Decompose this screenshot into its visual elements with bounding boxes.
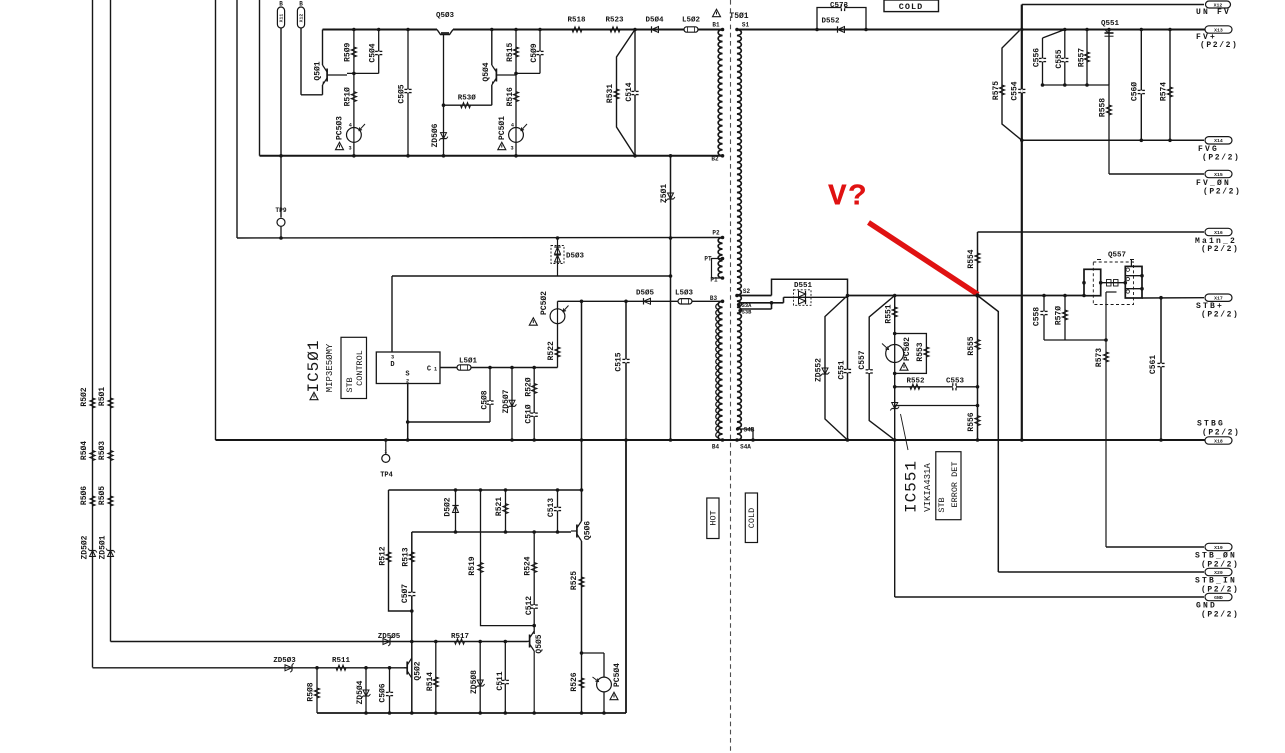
svg-text:R531: R531 bbox=[606, 84, 615, 103]
svg-text:R553: R553 bbox=[916, 342, 925, 361]
svg-text:3: 3 bbox=[511, 146, 514, 152]
svg-text:X16: X16 bbox=[1214, 230, 1223, 236]
svg-text:C561: C561 bbox=[1149, 355, 1158, 374]
svg-text:1: 1 bbox=[384, 449, 387, 455]
svg-text:S4A: S4A bbox=[740, 444, 751, 451]
svg-text:ERROR DET: ERROR DET bbox=[950, 462, 960, 508]
svg-text:L5Ø1: L5Ø1 bbox=[459, 357, 478, 366]
svg-text:Q5Ø4: Q5Ø4 bbox=[482, 62, 491, 81]
svg-text:R526: R526 bbox=[570, 672, 579, 691]
svg-text:(P2/2): (P2/2) bbox=[1203, 188, 1241, 197]
svg-text:C5Ø9: C5Ø9 bbox=[530, 43, 539, 62]
svg-text:R57Ø: R57Ø bbox=[1055, 306, 1064, 325]
svg-text:Q5Ø5: Q5Ø5 bbox=[535, 634, 544, 653]
svg-text:STB: STB bbox=[937, 497, 947, 512]
svg-text:ZD5Ø5: ZD5Ø5 bbox=[378, 632, 401, 641]
svg-text:(P2/2): (P2/2) bbox=[1202, 154, 1240, 163]
svg-text:VIKIA431A: VIKIA431A bbox=[923, 463, 933, 512]
svg-text:B3: B3 bbox=[710, 295, 718, 302]
svg-text:GND: GND bbox=[1196, 602, 1217, 611]
svg-text:D5Ø2: D5Ø2 bbox=[443, 497, 452, 516]
svg-text:(P2/2): (P2/2) bbox=[1202, 429, 1240, 438]
svg-text:X14: X14 bbox=[1214, 138, 1223, 144]
svg-text:PT: PT bbox=[704, 256, 712, 263]
svg-text:R5Ø9: R5Ø9 bbox=[343, 42, 352, 61]
svg-text:C553: C553 bbox=[946, 378, 965, 386]
svg-text:1: 1 bbox=[434, 366, 437, 372]
svg-text:ZD5Ø2: ZD5Ø2 bbox=[81, 535, 90, 559]
svg-text:(P2/2): (P2/2) bbox=[1201, 311, 1239, 320]
svg-text:(P2/2): (P2/2) bbox=[1201, 245, 1239, 254]
svg-text:Q551: Q551 bbox=[1101, 20, 1120, 28]
svg-text:R517: R517 bbox=[451, 633, 469, 641]
svg-text:C557: C557 bbox=[858, 350, 867, 369]
svg-text:S2: S2 bbox=[743, 288, 751, 295]
svg-text:R51Ø: R51Ø bbox=[343, 87, 352, 106]
svg-text:C515: C515 bbox=[615, 352, 624, 371]
svg-text:D552: D552 bbox=[821, 18, 840, 26]
svg-text:C556: C556 bbox=[1033, 48, 1042, 67]
svg-text:PC5Ø3: PC5Ø3 bbox=[336, 116, 345, 140]
svg-text:FV_ØN: FV_ØN bbox=[1196, 179, 1231, 188]
svg-text:S: S bbox=[405, 371, 409, 379]
svg-text:R53Ø: R53Ø bbox=[458, 94, 477, 103]
svg-text:C573: C573 bbox=[830, 2, 849, 10]
svg-text:R522: R522 bbox=[547, 341, 556, 360]
svg-text:R5Ø6: R5Ø6 bbox=[80, 486, 89, 505]
svg-text:C: C bbox=[427, 365, 431, 373]
svg-text:V?: V? bbox=[828, 180, 868, 215]
svg-text:R5Ø5: R5Ø5 bbox=[98, 486, 107, 505]
svg-text:R525: R525 bbox=[570, 571, 579, 590]
svg-text:Q5Ø6: Q5Ø6 bbox=[584, 521, 593, 540]
svg-text:R5Ø4: R5Ø4 bbox=[80, 441, 89, 460]
svg-text:STB_ØN: STB_ØN bbox=[1195, 552, 1237, 561]
svg-text:STB+: STB+ bbox=[1196, 302, 1224, 311]
svg-text:R574: R574 bbox=[1159, 82, 1168, 101]
svg-text:STB_IN: STB_IN bbox=[1195, 577, 1237, 586]
svg-text:Q557: Q557 bbox=[1108, 252, 1126, 260]
svg-text:ZD5Ø4: ZD5Ø4 bbox=[356, 680, 365, 704]
svg-text:R515: R515 bbox=[506, 42, 515, 61]
svg-text:B2: B2 bbox=[711, 156, 719, 163]
svg-text:Q5Ø1: Q5Ø1 bbox=[314, 61, 323, 80]
svg-text:D: D bbox=[390, 361, 394, 369]
svg-text:R5Ø3: R5Ø3 bbox=[98, 441, 107, 460]
svg-text:GND: GND bbox=[1214, 595, 1223, 601]
svg-text:R573: R573 bbox=[1095, 348, 1104, 367]
svg-text:S1: S1 bbox=[742, 22, 750, 29]
svg-text:R524: R524 bbox=[523, 556, 532, 575]
svg-text:S3B: S3B bbox=[742, 309, 752, 315]
svg-text:TP4: TP4 bbox=[380, 472, 393, 480]
svg-text:R575: R575 bbox=[992, 81, 1001, 100]
svg-text:X18: X18 bbox=[1214, 438, 1223, 444]
svg-text:R511: R511 bbox=[332, 657, 351, 665]
svg-text:C558: C558 bbox=[1032, 307, 1041, 326]
svg-text:D551: D551 bbox=[794, 282, 813, 290]
svg-text:X17: X17 bbox=[1214, 296, 1223, 302]
svg-text:4: 4 bbox=[349, 123, 352, 129]
svg-text:HOT: HOT bbox=[708, 510, 718, 525]
svg-text:C5Ø8: C5Ø8 bbox=[481, 390, 490, 409]
svg-text:R555: R555 bbox=[967, 336, 976, 355]
svg-text:X20: X20 bbox=[1214, 570, 1223, 576]
svg-text:TP9: TP9 bbox=[275, 207, 286, 214]
svg-text:4: 4 bbox=[511, 123, 514, 129]
svg-text:C56Ø: C56Ø bbox=[1130, 82, 1139, 101]
svg-text:STB: STB bbox=[345, 377, 355, 392]
svg-text:L5Ø3: L5Ø3 bbox=[675, 289, 694, 298]
svg-text:PC5Ø2: PC5Ø2 bbox=[540, 291, 549, 315]
svg-text:B1: B1 bbox=[712, 22, 720, 29]
svg-text:PC5Ø2: PC5Ø2 bbox=[903, 337, 912, 361]
svg-text:PC5Ø1: PC5Ø1 bbox=[498, 116, 507, 140]
svg-text:X12: X12 bbox=[298, 14, 304, 23]
svg-text:T5Ø1: T5Ø1 bbox=[729, 12, 748, 21]
svg-text:ZD5Ø1: ZD5Ø1 bbox=[99, 535, 108, 559]
svg-text:X11: X11 bbox=[278, 14, 284, 23]
svg-text:COLD: COLD bbox=[899, 2, 923, 12]
svg-text:ZD552: ZD552 bbox=[814, 358, 823, 382]
svg-text:D5Ø3: D5Ø3 bbox=[566, 252, 585, 261]
svg-text:MIP3E5ØMY: MIP3E5ØMY bbox=[325, 343, 335, 392]
svg-text:IC5Ø1: IC5Ø1 bbox=[305, 339, 323, 392]
svg-text:D5Ø5: D5Ø5 bbox=[636, 289, 655, 298]
svg-text:R5Ø8: R5Ø8 bbox=[306, 682, 315, 701]
svg-text:C5Ø5: C5Ø5 bbox=[397, 84, 406, 103]
svg-text:R514: R514 bbox=[426, 672, 435, 691]
svg-text:C5Ø7: C5Ø7 bbox=[401, 584, 410, 603]
svg-text:L5Ø2: L5Ø2 bbox=[682, 16, 701, 25]
svg-text:(P2/2): (P2/2) bbox=[1201, 611, 1239, 620]
svg-text:R512: R512 bbox=[379, 546, 388, 565]
svg-text:STBG: STBG bbox=[1197, 420, 1225, 429]
svg-text:3: 3 bbox=[391, 355, 394, 361]
svg-text:C554: C554 bbox=[1011, 81, 1020, 100]
svg-text:S3A: S3A bbox=[742, 303, 752, 309]
svg-text:R513: R513 bbox=[401, 547, 410, 566]
svg-text:R518: R518 bbox=[567, 17, 586, 25]
svg-text:R519: R519 bbox=[468, 556, 477, 575]
svg-text:R516: R516 bbox=[506, 87, 515, 106]
svg-text:ZD5Ø6: ZD5Ø6 bbox=[431, 123, 440, 147]
svg-text:3: 3 bbox=[348, 146, 351, 152]
svg-text:Q5Ø3: Q5Ø3 bbox=[436, 11, 455, 20]
svg-text:CONTROL: CONTROL bbox=[355, 350, 365, 386]
svg-text:R552: R552 bbox=[906, 378, 925, 386]
svg-text:PC5Ø4: PC5Ø4 bbox=[613, 663, 622, 687]
svg-text:D5Ø4: D5Ø4 bbox=[645, 16, 664, 25]
svg-text:IC551: IC551 bbox=[903, 460, 921, 513]
svg-text:X19: X19 bbox=[1214, 545, 1223, 551]
svg-text:ZD5Ø8: ZD5Ø8 bbox=[470, 670, 479, 694]
svg-text:X15: X15 bbox=[1214, 172, 1223, 178]
svg-text:P2: P2 bbox=[712, 230, 720, 237]
svg-text:(P2/2): (P2/2) bbox=[1200, 41, 1238, 50]
svg-text:R5Ø1: R5Ø1 bbox=[98, 387, 107, 406]
svg-text:R523: R523 bbox=[605, 17, 624, 25]
svg-text:2: 2 bbox=[406, 378, 409, 384]
svg-text:UN FV: UN FV bbox=[1196, 8, 1231, 17]
svg-text:R5Ø2: R5Ø2 bbox=[80, 387, 89, 406]
svg-text:B4: B4 bbox=[712, 444, 720, 451]
svg-text:R556: R556 bbox=[967, 412, 976, 431]
svg-text:C5Ø4: C5Ø4 bbox=[369, 43, 378, 62]
svg-text:R558: R558 bbox=[1098, 98, 1107, 117]
svg-text:C51Ø: C51Ø bbox=[524, 404, 533, 423]
svg-text:R554: R554 bbox=[967, 249, 976, 268]
svg-text:R557: R557 bbox=[1077, 48, 1086, 67]
svg-text:Q5Ø2: Q5Ø2 bbox=[413, 661, 422, 680]
svg-text:COLD: COLD bbox=[747, 508, 757, 528]
